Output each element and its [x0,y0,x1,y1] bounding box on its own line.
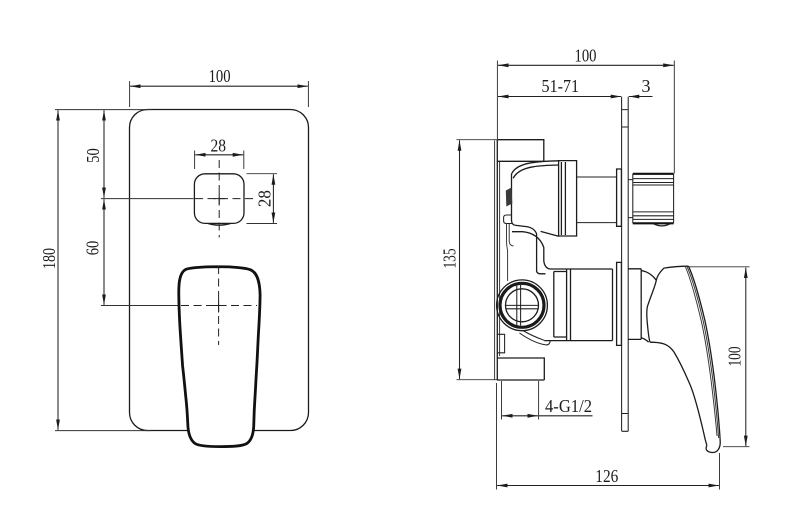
svg-text:100: 100 [724,347,744,367]
svg-text:51-71: 51-71 [542,76,580,96]
svg-text:28: 28 [210,135,226,155]
svg-text:135: 135 [439,249,459,269]
svg-text:4-G1/2: 4-G1/2 [545,396,592,416]
svg-text:180: 180 [39,248,59,269]
svg-text:100: 100 [575,45,597,65]
svg-text:28: 28 [254,190,274,207]
svg-text:60: 60 [82,241,102,256]
svg-text:3: 3 [642,76,651,96]
svg-text:126: 126 [595,466,618,486]
svg-text:50: 50 [83,148,103,163]
svg-text:100: 100 [209,66,231,86]
